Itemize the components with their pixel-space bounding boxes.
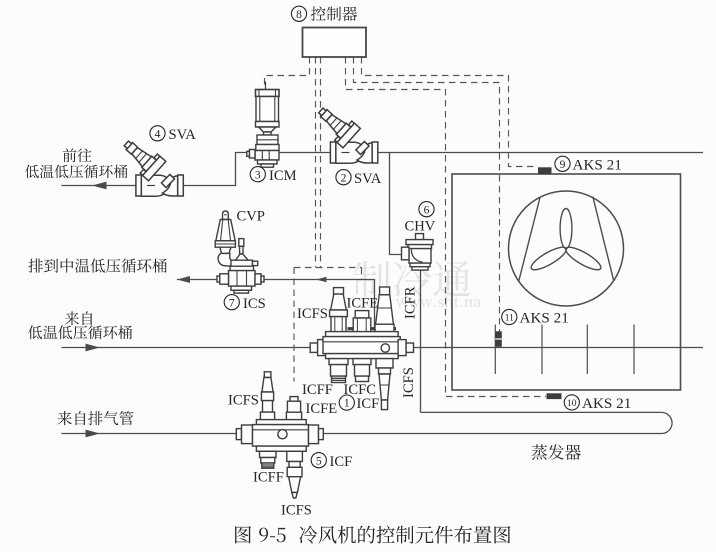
svg-text:1: 1 bbox=[344, 398, 350, 410]
svg-text:ICFF: ICFF bbox=[302, 382, 333, 398]
svg-text:ICFR: ICFR bbox=[403, 286, 419, 319]
svg-text:ICFF: ICFF bbox=[253, 470, 284, 486]
svg-text:ICFS: ICFS bbox=[228, 392, 259, 408]
svg-text:ICF: ICF bbox=[357, 396, 380, 412]
svg-text:ICFS: ICFS bbox=[297, 306, 328, 322]
svg-text:4: 4 bbox=[155, 128, 161, 140]
svg-text:AKS 21: AKS 21 bbox=[582, 395, 631, 412]
svg-text:3: 3 bbox=[255, 169, 261, 181]
svg-text:ICFS: ICFS bbox=[401, 367, 417, 398]
svg-text:7: 7 bbox=[229, 297, 235, 309]
svg-text:ICM: ICM bbox=[269, 168, 297, 184]
svg-text:2: 2 bbox=[341, 172, 347, 184]
svg-text:SVA: SVA bbox=[169, 127, 197, 143]
svg-text:10: 10 bbox=[567, 399, 577, 409]
svg-text:ICFE: ICFE bbox=[306, 401, 338, 417]
svg-text:CVP: CVP bbox=[237, 209, 265, 225]
svg-text:5: 5 bbox=[316, 455, 322, 467]
svg-text:ICFS: ICFS bbox=[281, 503, 312, 519]
svg-text:8: 8 bbox=[296, 9, 302, 21]
svg-text:6: 6 bbox=[424, 204, 430, 216]
svg-text:ICS: ICS bbox=[243, 296, 266, 312]
svg-text:SVA: SVA bbox=[354, 171, 382, 187]
svg-text:ICF: ICF bbox=[330, 454, 353, 470]
svg-text:9: 9 bbox=[560, 159, 566, 171]
svg-text:AKS 21: AKS 21 bbox=[520, 310, 569, 327]
svg-text:ICFE: ICFE bbox=[347, 295, 379, 311]
svg-text:11: 11 bbox=[505, 313, 514, 323]
svg-text:AKS 21: AKS 21 bbox=[573, 156, 622, 173]
svg-text:CHV: CHV bbox=[405, 219, 436, 235]
